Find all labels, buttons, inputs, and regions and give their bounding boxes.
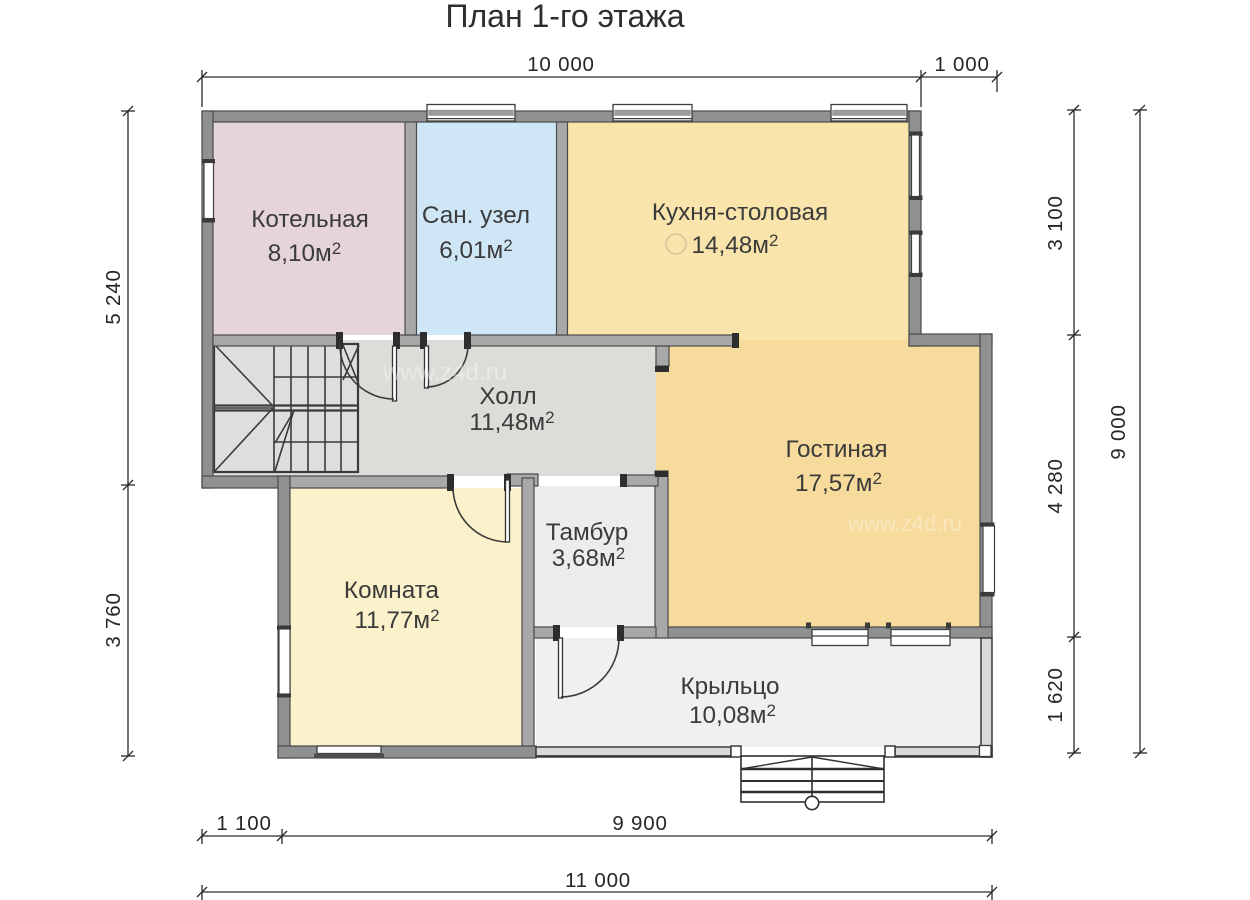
svg-text:17,57м2: 17,57м2	[795, 469, 882, 497]
svg-text:www.z4d.ru: www.z4d.ru	[847, 511, 962, 536]
svg-text:1 000: 1 000	[934, 53, 989, 76]
svg-text:11,48м2: 11,48м2	[469, 408, 554, 436]
svg-text:Комната: Комната	[344, 577, 440, 604]
svg-text:3,68м2: 3,68м2	[552, 544, 625, 572]
svg-text:6,01м2: 6,01м2	[439, 236, 512, 264]
svg-text:4 280: 4 280	[1044, 458, 1067, 513]
svg-text:Холл: Холл	[479, 383, 536, 410]
svg-text:11 000: 11 000	[565, 869, 631, 892]
svg-text:Крыльцо: Крыльцо	[680, 673, 779, 700]
svg-text:5 240: 5 240	[102, 269, 125, 324]
svg-text:9 000: 9 000	[1107, 404, 1130, 459]
svg-text:www.z4d.ru: www.z4d.ru	[382, 359, 507, 386]
svg-text:Кухня-столовая: Кухня-столовая	[652, 199, 828, 226]
svg-text:3 760: 3 760	[102, 592, 125, 647]
svg-text:1 620: 1 620	[1044, 667, 1067, 722]
svg-text:9 900: 9 900	[612, 812, 667, 835]
svg-text:11,77м2: 11,77м2	[354, 606, 439, 634]
svg-text:Тамбур: Тамбур	[546, 519, 628, 546]
svg-text:Сан. узел: Сан. узел	[422, 202, 530, 229]
svg-text:1 100: 1 100	[216, 812, 271, 835]
svg-text:10 000: 10 000	[527, 53, 595, 76]
svg-text:План 1-го этажа: План 1-го этажа	[445, 0, 684, 34]
svg-text:8,10м2: 8,10м2	[268, 239, 341, 267]
svg-text:14,48м2: 14,48м2	[692, 231, 779, 259]
svg-text:Котельная: Котельная	[251, 206, 369, 233]
svg-text:10,08м2: 10,08м2	[689, 701, 776, 729]
svg-text:Гостиная: Гостиная	[786, 436, 888, 463]
svg-text:3 100: 3 100	[1044, 195, 1067, 250]
